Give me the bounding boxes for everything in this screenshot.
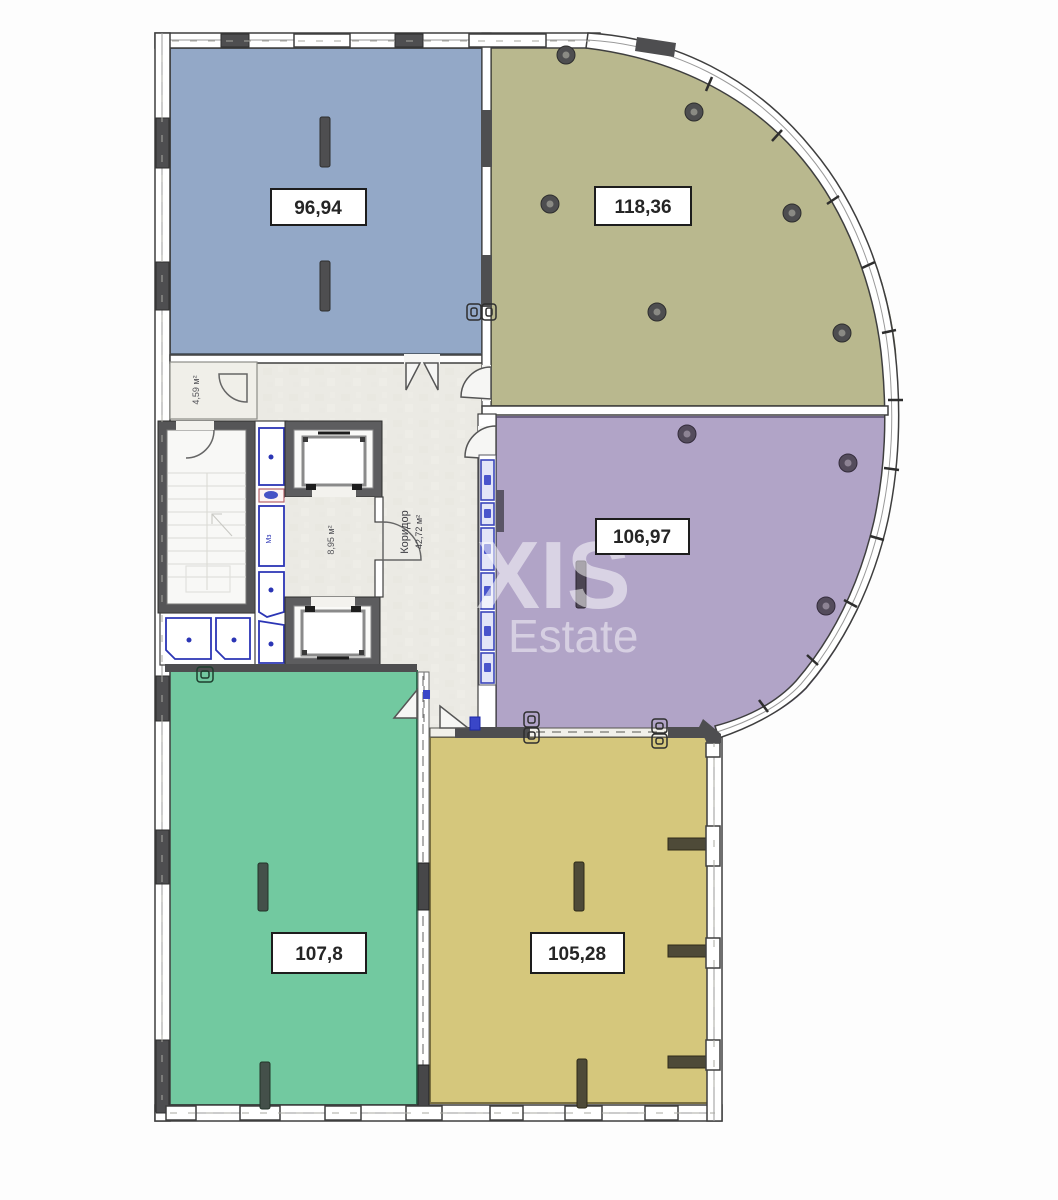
svg-text:107,8: 107,8	[295, 944, 343, 965]
svg-text:Мз: Мз	[266, 534, 273, 543]
svg-text:105,28: 105,28	[548, 944, 606, 965]
svg-text:Коридор: Коридор	[399, 510, 411, 553]
svg-text:8,95 м²: 8,95 м²	[326, 525, 336, 554]
svg-text:118,36: 118,36	[614, 197, 671, 218]
svg-text:106,97: 106,97	[613, 527, 671, 548]
svg-text:4,59 м²: 4,59 м²	[191, 375, 201, 404]
svg-text:96,94: 96,94	[294, 198, 342, 219]
svg-text:42,72 м²: 42,72 м²	[414, 515, 424, 549]
svg-text:Estate: Estate	[508, 610, 638, 662]
